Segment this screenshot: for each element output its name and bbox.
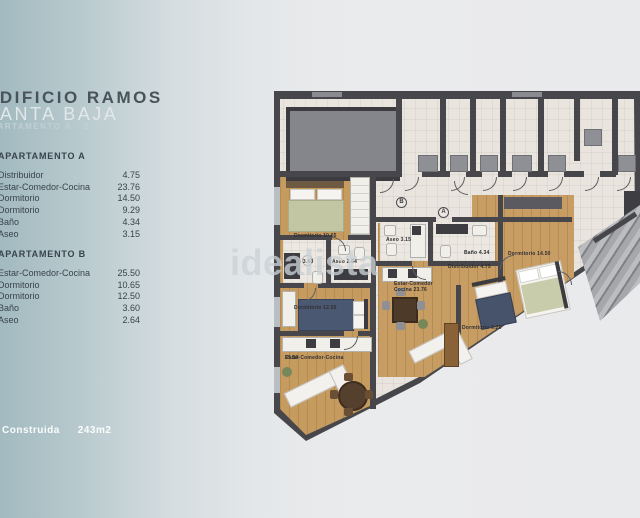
apartment-a-table: APARTAMENTO A Distribuidor4.75Estar-Come… <box>0 151 140 240</box>
kitchen-counter <box>282 337 372 352</box>
room-name: Dormitorio <box>0 193 40 205</box>
bathtub <box>436 224 468 234</box>
room-area: 23.76 <box>117 182 140 194</box>
room-row: Dormitorio12.50 <box>0 291 140 303</box>
apartment-b-title: APARTAMENTO B <box>0 249 140 259</box>
storage-mat <box>548 155 566 172</box>
wardrobe <box>350 177 370 235</box>
floorplan-page: { "header": { "building": "EDIFICIO RAMO… <box>0 0 640 518</box>
window <box>274 297 280 327</box>
wall <box>358 331 374 336</box>
room-row: Aseo2.64 <box>0 315 140 327</box>
wall <box>564 171 584 177</box>
room-row: Dormitorio9.29 <box>0 205 140 217</box>
storage-mat <box>450 155 468 172</box>
wall <box>280 171 402 177</box>
room-name: Estar-Comedor-Cocina <box>0 268 90 280</box>
wall <box>538 99 544 175</box>
room-area: 12.50 <box>117 291 140 303</box>
washing-machine <box>412 226 421 235</box>
bed-double-a <box>515 261 568 317</box>
room-label-aseo-a: Aseo 3.15 <box>386 237 411 243</box>
apartment-a-marker: A <box>438 207 449 218</box>
room-area: 4.34 <box>122 217 140 229</box>
wall <box>574 99 580 161</box>
wall <box>440 99 446 175</box>
room-label-distribuidor-a: Distribuidor 4.75 <box>448 264 491 270</box>
room-name: Aseo <box>0 229 19 241</box>
chair <box>344 408 353 416</box>
room-area: 2.64 <box>122 315 140 327</box>
chair <box>396 322 405 330</box>
storage-mat <box>418 155 438 172</box>
toilet <box>440 245 451 258</box>
bed-double-navy <box>298 299 368 329</box>
kitchen-table-a <box>392 297 418 323</box>
room-area: 9.29 <box>122 205 140 217</box>
window <box>312 92 342 97</box>
sink <box>472 225 487 236</box>
kitchen-sink-a <box>388 269 397 278</box>
room-name: Baño <box>0 217 19 229</box>
room-row: Estar-Comedor-Cocina25.50 <box>0 268 140 280</box>
room-label-bano-a: Baño 4.34 <box>464 250 489 256</box>
room-area: 25.50 <box>117 268 140 280</box>
room-row: Dormitorio14.50 <box>0 193 140 205</box>
apartments-subtitle: APARTAMENTO A - B <box>0 122 91 131</box>
wall <box>280 331 344 336</box>
kitchen-sink <box>330 339 340 348</box>
apartment-a-rows: Distribuidor4.75Estar-Comedor-Cocina23.7… <box>0 170 140 240</box>
chair <box>344 373 353 381</box>
plant <box>418 319 428 329</box>
room-area: 10.65 <box>117 280 140 292</box>
storage-mat <box>512 155 532 172</box>
room-label-dormitorio-b1: Dormitorio 10.65 <box>294 233 337 239</box>
room-row: Baño4.34 <box>0 217 140 229</box>
room-name: Aseo <box>0 315 19 327</box>
chair <box>382 301 390 310</box>
window <box>274 187 280 225</box>
wall <box>470 99 476 175</box>
patio <box>286 107 400 181</box>
sink <box>384 225 396 236</box>
room-label-dormitorio-b2: Dormitorio 12.50 <box>294 305 337 311</box>
wardrobe-tall <box>444 323 459 367</box>
room-row: Baño3.60 <box>0 303 140 315</box>
storage-mat <box>480 155 498 172</box>
room-name: Dormitorio <box>0 291 40 303</box>
apartment-a-title: APARTAMENTO A <box>0 151 140 161</box>
chair <box>365 390 373 399</box>
stove <box>306 339 316 348</box>
room-name: Estar-Comedor-Cocina <box>0 182 90 194</box>
wall <box>396 99 402 175</box>
room-name: Dormitorio <box>0 280 40 292</box>
storage-mat <box>584 129 602 146</box>
built-area-label: Construida <box>2 425 60 436</box>
room-name: Baño <box>0 303 19 315</box>
room-area: 4.75 <box>122 170 140 182</box>
apartment-b-marker: B <box>396 197 407 208</box>
wall <box>500 99 506 175</box>
wardrobe-a <box>504 197 562 209</box>
bed-double <box>286 181 344 231</box>
wall <box>376 261 412 266</box>
apartment-b-table: APARTAMENTO B Estar-Comedor-Cocina25.50D… <box>0 249 140 327</box>
dining-table <box>338 381 368 411</box>
wall <box>498 171 512 177</box>
legend-panel: EDIFICIO RAMOS PLANTA BAJA APARTAMENTO A… <box>0 0 230 518</box>
wall <box>370 171 376 409</box>
window <box>274 367 280 393</box>
idealista-watermark: idealista <box>230 242 379 284</box>
room-row: Estar-Comedor-Cocina23.76 <box>0 182 140 194</box>
chair <box>330 390 338 399</box>
toilet <box>386 243 397 256</box>
room-label-dormitorio-a2: Dormitorio 9.29 <box>462 325 502 331</box>
wall <box>600 171 616 177</box>
room-row: Distribuidor4.75 <box>0 170 140 182</box>
apartment-b-rows: Estar-Comedor-Cocina25.50Dormitorio10.65… <box>0 268 140 327</box>
room-area: 14.50 <box>117 193 140 205</box>
room-row: Dormitorio10.65 <box>0 280 140 292</box>
room-name: Dormitorio <box>0 205 40 217</box>
plant <box>282 367 292 377</box>
storage-mat <box>618 155 636 172</box>
room-name: Distribuidor <box>0 170 44 182</box>
room-label-dormitorio-a1: Dormitorio 14.50 <box>508 251 551 257</box>
chair <box>417 301 425 310</box>
room-row: Aseo3.15 <box>0 229 140 241</box>
room-area: 3.60 <box>122 303 140 315</box>
built-area: Construida243m2 <box>2 425 111 436</box>
room-area: 3.15 <box>122 229 140 241</box>
window <box>512 92 542 97</box>
built-area-value: 243m2 <box>78 425 112 436</box>
